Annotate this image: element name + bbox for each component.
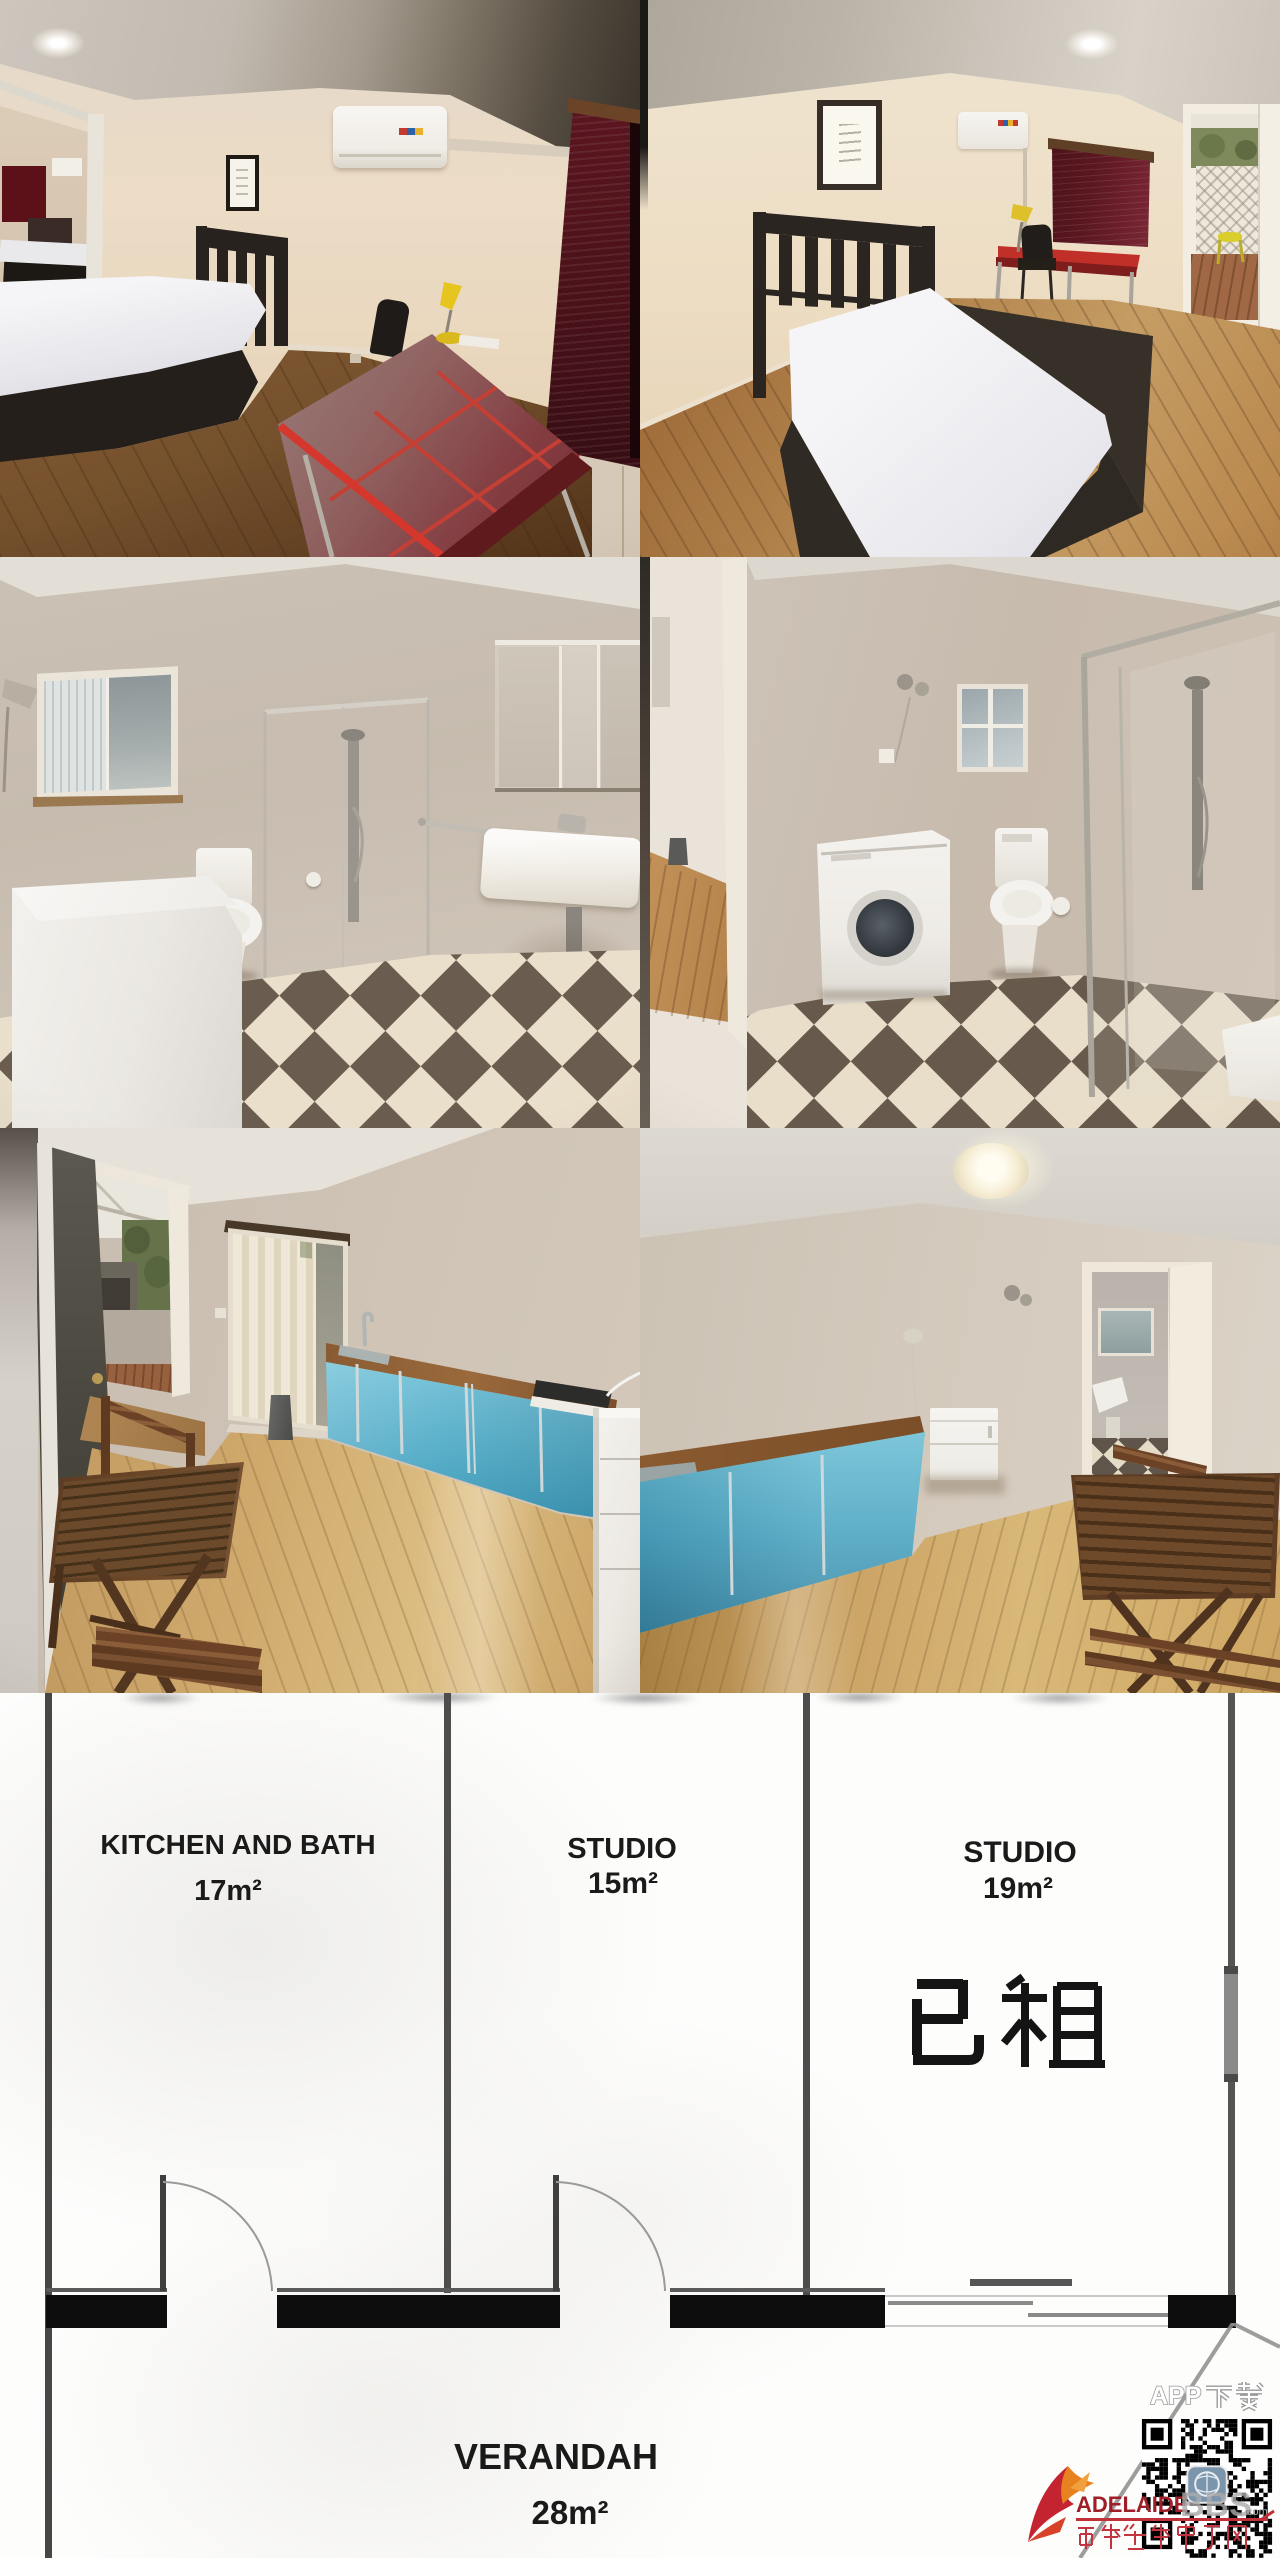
svg-text:APP: APP <box>1150 2382 1201 2410</box>
svg-text:ADELAIDE: ADELAIDE <box>1076 2492 1188 2517</box>
